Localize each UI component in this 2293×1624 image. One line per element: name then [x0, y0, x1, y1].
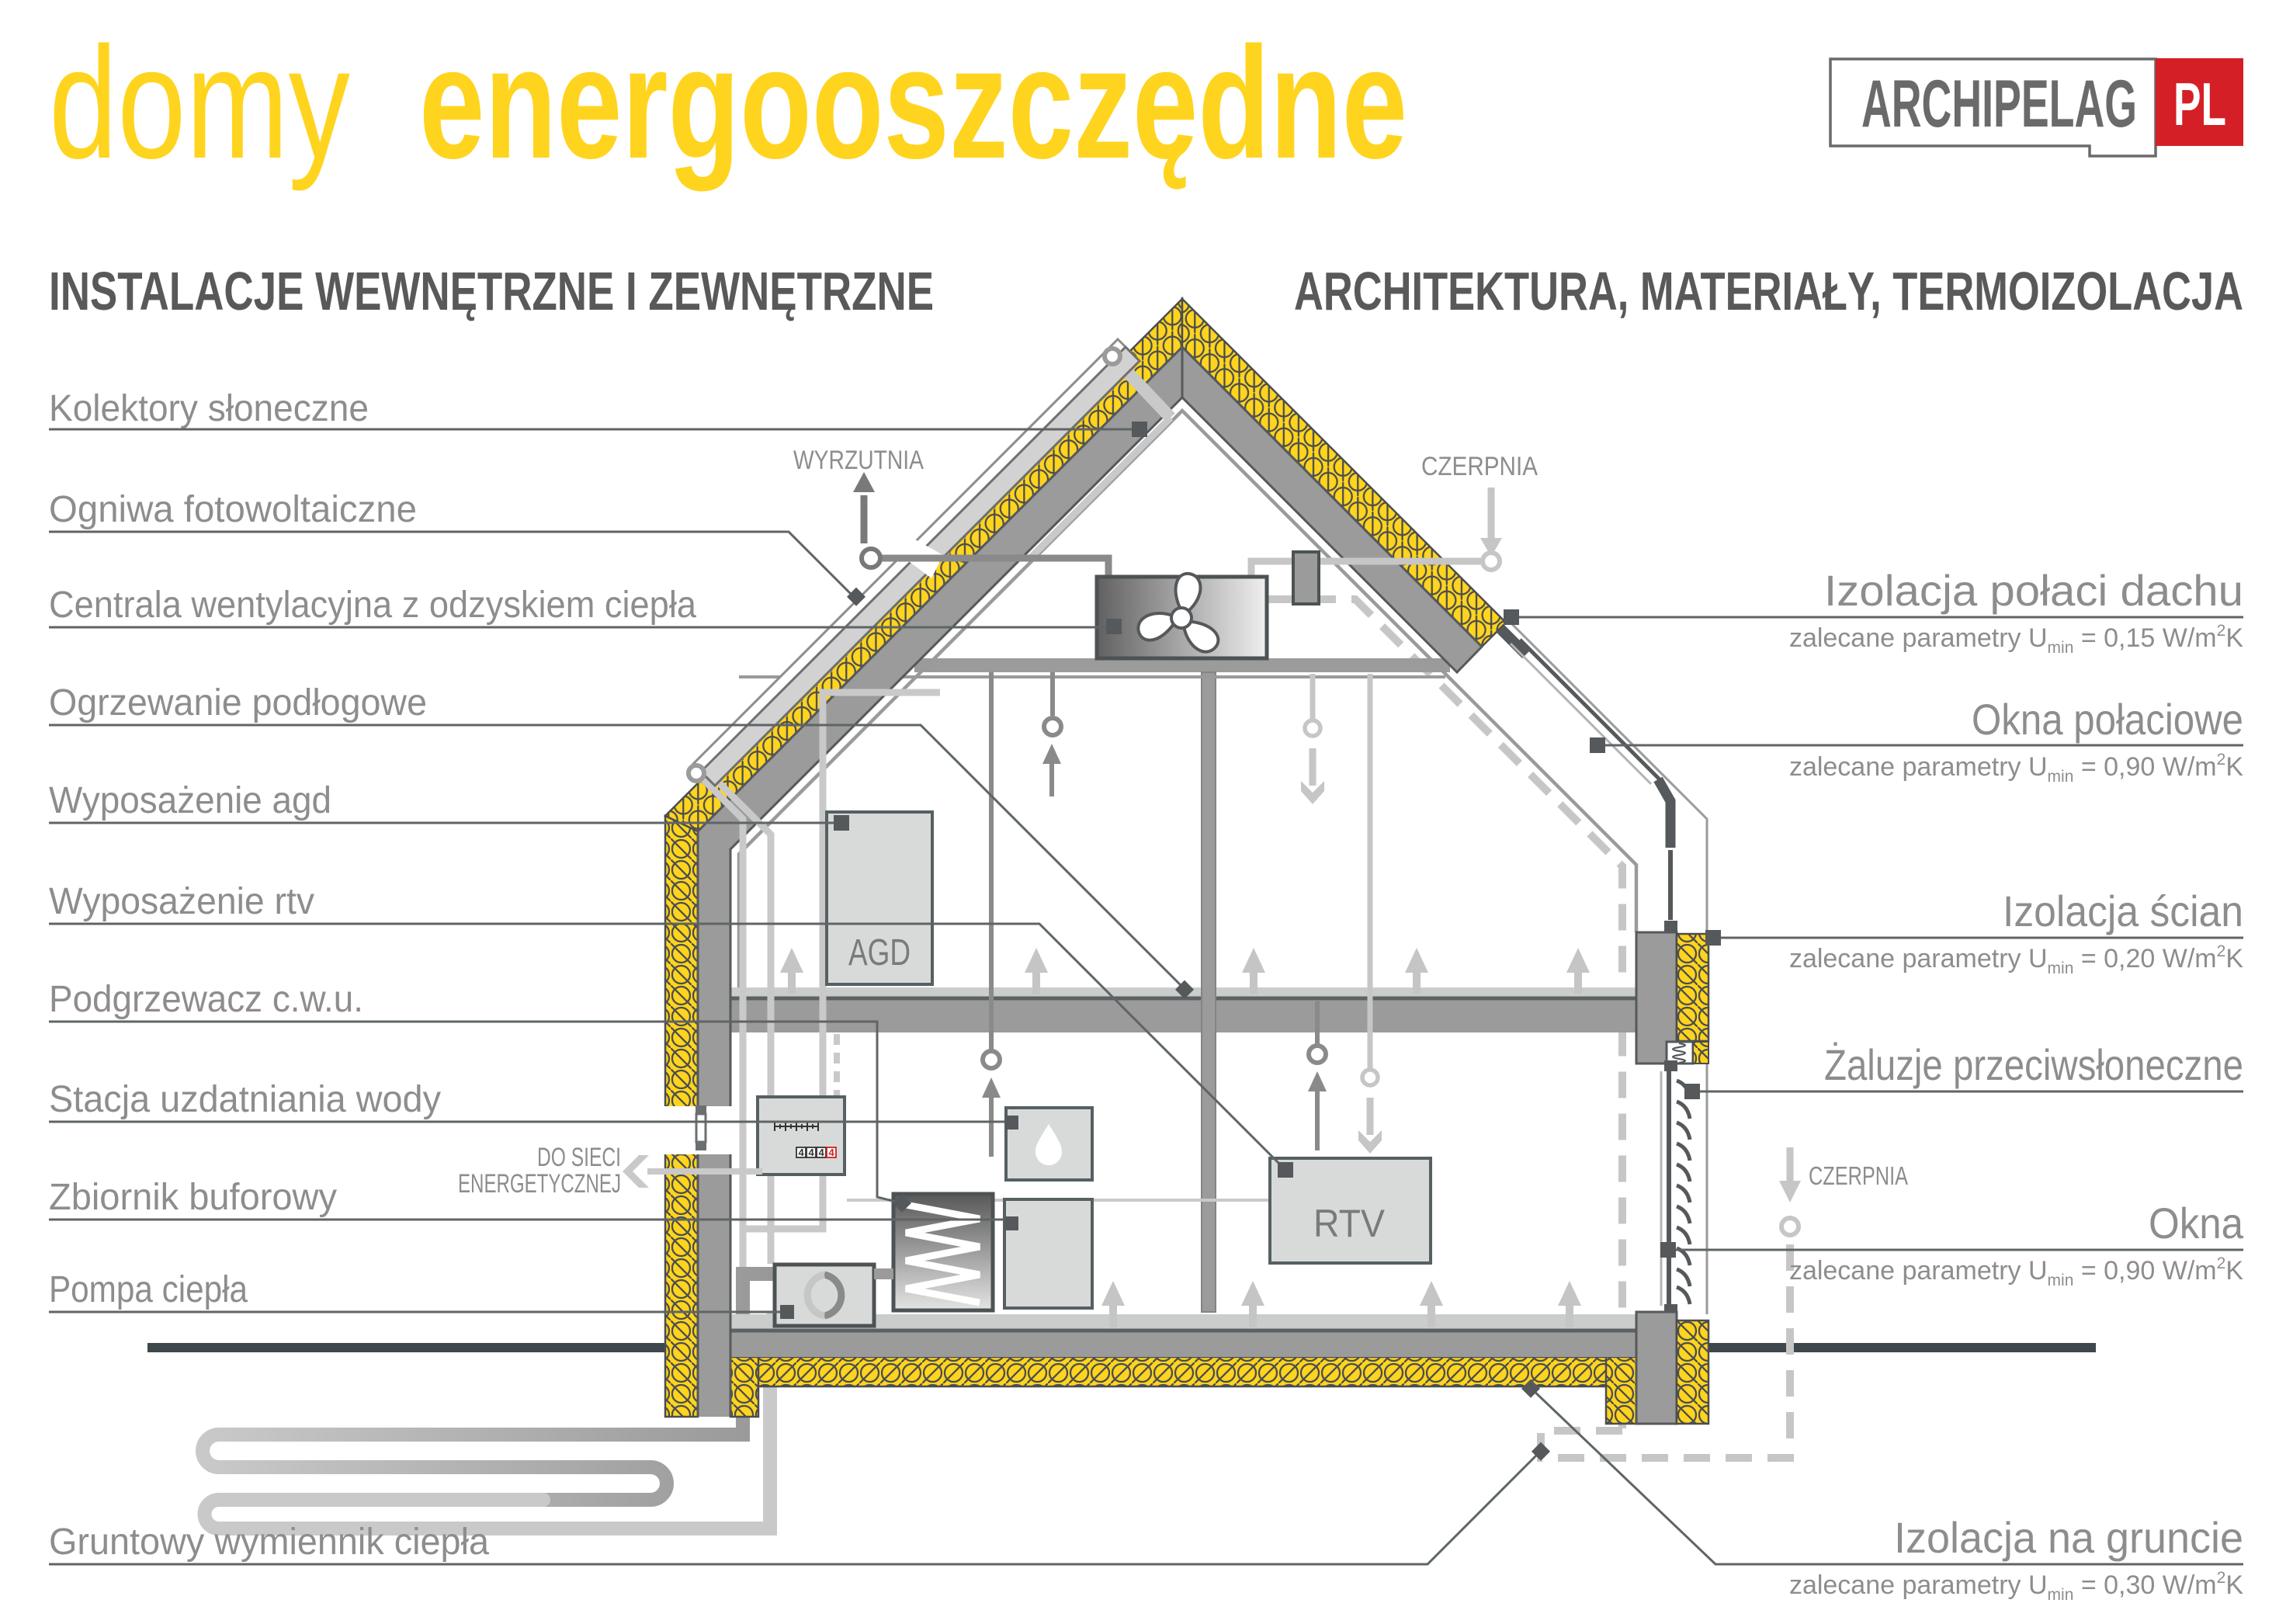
svg-text:PL: PL [2173, 70, 2226, 138]
svg-text:Izolacja na gruncie: Izolacja na gruncie [1894, 1513, 2243, 1562]
svg-text:CZERPNIA: CZERPNIA [1421, 452, 1538, 481]
svg-text:zalecane parametry Umin = 0,90: zalecane parametry Umin = 0,90 W/m2K [1789, 751, 2243, 786]
svg-text:Żaluzje przeciwsłoneczne: Żaluzje przeciwsłoneczne [1824, 1040, 2243, 1089]
svg-text:zalecane parametry Umin = 0,30: zalecane parametry Umin = 0,30 W/m2K [1789, 1569, 2243, 1604]
svg-text:Izolacja połaci dachu: Izolacja połaci dachu [1824, 566, 2243, 615]
svg-text:CZERPNIA: CZERPNIA [1809, 1161, 1908, 1190]
svg-text:energooszczędne: energooszczędne [419, 14, 1407, 192]
svg-text:Stacja uzdatniania wody: Stacja uzdatniania wody [49, 1079, 441, 1120]
svg-text:zalecane parametry Umin = 0,90: zalecane parametry Umin = 0,90 W/m2K [1789, 1254, 2243, 1289]
svg-text:Izolacja ścian: Izolacja ścian [2003, 887, 2243, 935]
svg-text:Ogniwa fotowoltaiczne: Ogniwa fotowoltaiczne [49, 489, 417, 530]
svg-text:Okna: Okna [2149, 1199, 2244, 1247]
svg-text:DO SIECI: DO SIECI [537, 1143, 621, 1172]
svg-text:Podgrzewacz c.w.u.: Podgrzewacz c.w.u. [49, 979, 363, 1020]
svg-text:Wyposażenie rtv: Wyposażenie rtv [49, 881, 314, 922]
svg-text:Ogrzewanie podłogowe: Ogrzewanie podłogowe [49, 682, 427, 724]
svg-text:4: 4 [809, 1147, 815, 1158]
svg-text:4: 4 [829, 1147, 835, 1158]
svg-text:4: 4 [799, 1147, 805, 1158]
svg-text:Zbiornik buforowy: Zbiornik buforowy [49, 1177, 337, 1218]
svg-text:domy: domy [49, 14, 350, 192]
svg-text:Pompa ciepła: Pompa ciepła [49, 1269, 248, 1310]
svg-text:WYRZUTNIA: WYRZUTNIA [793, 446, 924, 475]
svg-text:ENERGETYCZNEJ: ENERGETYCZNEJ [458, 1169, 621, 1199]
svg-text:RTV: RTV [1313, 1202, 1386, 1245]
svg-text:AGD: AGD [848, 932, 911, 973]
svg-text:zalecane parametry Umin = 0,20: zalecane parametry Umin = 0,20 W/m2K [1789, 942, 2243, 977]
svg-text:zalecane parametry Umin = 0,15: zalecane parametry Umin = 0,15 W/m2K [1789, 622, 2243, 657]
svg-text:INSTALACJE WEWNĘTRZNE I ZEWNĘT: INSTALACJE WEWNĘTRZNE I ZEWNĘTRZNE [49, 261, 934, 321]
svg-text:ARCHITEKTURA, MATERIAŁY, TERMO: ARCHITEKTURA, MATERIAŁY, TERMOIZOLACJA [1294, 261, 2243, 321]
svg-text:Okna połaciowe: Okna połaciowe [1972, 695, 2243, 744]
svg-text:ARCHIPELAG: ARCHIPELAG [1861, 67, 2137, 141]
svg-text:Centrala wentylacyjna z odzysk: Centrala wentylacyjna z odzyskiem ciepła [49, 585, 696, 626]
svg-text:Kolektory słoneczne: Kolektory słoneczne [49, 388, 369, 429]
svg-text:Gruntowy wymiennik ciepła: Gruntowy wymiennik ciepła [49, 1522, 489, 1563]
svg-text:Wyposażenie agd: Wyposażenie agd [49, 780, 331, 821]
svg-text:4: 4 [819, 1147, 825, 1158]
